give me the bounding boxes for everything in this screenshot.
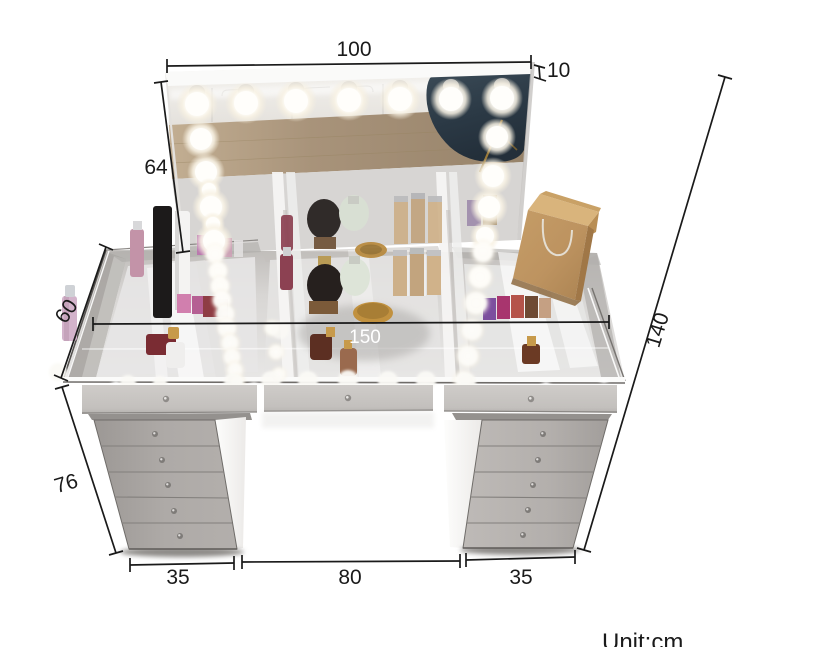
svg-text:35: 35 — [166, 566, 189, 589]
svg-text:80: 80 — [338, 566, 361, 589]
svg-text:35: 35 — [509, 566, 532, 589]
svg-text:64: 64 — [144, 156, 168, 179]
svg-text:Unit:cm: Unit:cm — [602, 629, 683, 647]
svg-text:10: 10 — [547, 59, 570, 82]
svg-text:150: 150 — [349, 327, 381, 348]
svg-text:100: 100 — [336, 38, 371, 61]
